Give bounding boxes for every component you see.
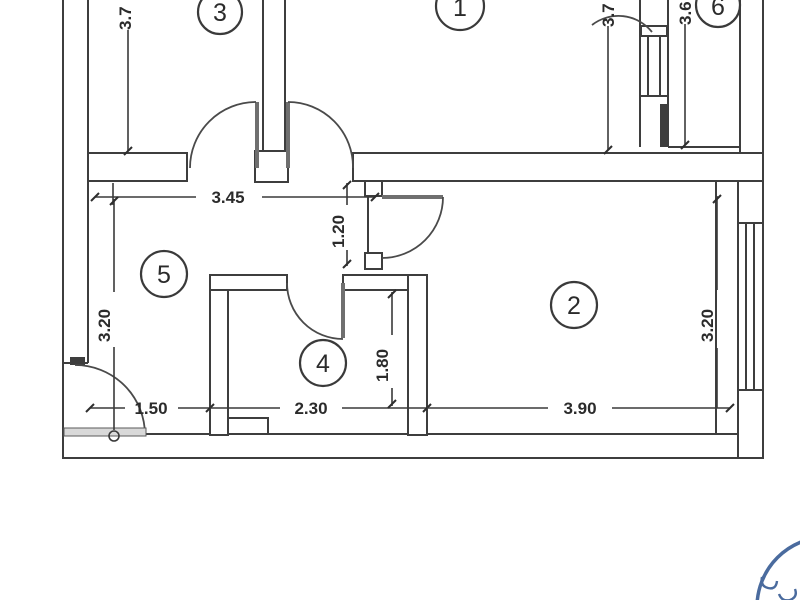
room-number: 2 bbox=[567, 292, 581, 320]
shaft-cap bbox=[641, 26, 667, 36]
dimension-label: 3.20 bbox=[698, 309, 717, 342]
dimension-left-height: 3.20 bbox=[95, 197, 119, 441]
room-label-4: 4 bbox=[300, 340, 346, 386]
dimension-room2-width: 3.90 bbox=[427, 399, 734, 418]
divider-wall-lines bbox=[263, 0, 285, 151]
right-window bbox=[738, 223, 763, 390]
room4-duct-box bbox=[228, 418, 268, 434]
dimension-hall-width: 3.45 bbox=[91, 183, 379, 207]
bottom-wall bbox=[63, 434, 763, 458]
dimension-room3-height: 3.7 bbox=[116, 6, 135, 155]
door-post-lower bbox=[365, 253, 382, 269]
dimension-label: 3.6 bbox=[676, 1, 695, 25]
dimension-label: 3.20 bbox=[95, 309, 114, 342]
room4-door-arc bbox=[287, 283, 343, 339]
room-number: 4 bbox=[316, 350, 330, 378]
room-label-2: 2 bbox=[551, 282, 597, 328]
dimension-label: 3.7 bbox=[599, 3, 618, 27]
dimension-bath-height: 1.80 bbox=[373, 290, 396, 408]
wall-segment-right bbox=[353, 153, 763, 181]
dimension-room2-height: 3.20 bbox=[698, 195, 721, 408]
room-number: 6 bbox=[711, 0, 725, 21]
wall-segment-left bbox=[88, 153, 187, 181]
shaft-solid-fill bbox=[660, 104, 668, 147]
stamp-outer-ring bbox=[757, 537, 800, 600]
center-door-post bbox=[255, 151, 288, 182]
corridor-door-arc bbox=[382, 197, 443, 258]
room-label-1: 1 bbox=[436, 0, 484, 30]
dimension-bath-width: 2.30 bbox=[210, 399, 431, 418]
dimension-label: 1.80 bbox=[373, 349, 392, 382]
dimension-room6-height: 3.6 bbox=[676, 1, 695, 149]
dimension-passage-height: 1.20 bbox=[329, 181, 351, 268]
room1-door-arc bbox=[288, 102, 353, 168]
entrance-threshold bbox=[64, 428, 146, 436]
entrance-hinge-block bbox=[70, 357, 85, 365]
dimension-label: 3.90 bbox=[563, 399, 596, 418]
floor-plan-page: 3.7 3.7 3.6 3.45 1.20 bbox=[0, 0, 800, 600]
dimension-label: 2.30 bbox=[294, 399, 327, 418]
room3-door-arc bbox=[190, 102, 256, 168]
floor-plan-drawing: 3.7 3.7 3.6 3.45 1.20 bbox=[0, 0, 800, 600]
room-label-5: 5 bbox=[141, 251, 187, 297]
right-wall-upper-pier bbox=[738, 181, 763, 223]
approval-stamp bbox=[757, 537, 800, 600]
room-number: 3 bbox=[213, 0, 227, 27]
room-label-3: 3 bbox=[198, 0, 242, 34]
stamp-letter-mark bbox=[779, 589, 796, 600]
room-number: 5 bbox=[157, 261, 171, 289]
dimension-label: 1.50 bbox=[134, 399, 167, 418]
shaft-inner-lines bbox=[640, 36, 668, 96]
room3-room1-divider bbox=[263, 0, 285, 151]
room4-left-wall bbox=[210, 275, 228, 435]
dimension-room1-height: 3.7 bbox=[599, 3, 618, 154]
room-number: 1 bbox=[453, 0, 467, 22]
dimension-label: 1.20 bbox=[329, 215, 348, 248]
room-label-6: 6 bbox=[696, 0, 740, 27]
dimension-label: 3.45 bbox=[211, 188, 244, 207]
dimension-label: 3.7 bbox=[116, 6, 135, 30]
right-wall-lower-pier bbox=[738, 390, 763, 458]
room4-top-wall-left bbox=[210, 275, 287, 290]
dimension-entry-width: 1.50 bbox=[86, 399, 214, 418]
